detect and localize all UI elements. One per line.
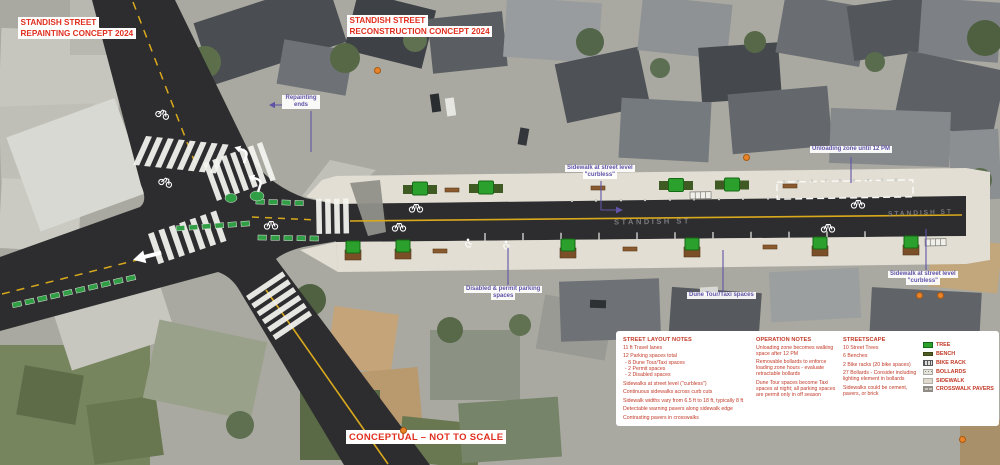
title-line: STANDISH STREET bbox=[18, 17, 99, 28]
callout-text: Disabled & permit parking bbox=[464, 286, 542, 293]
note-item: Sidewalks at street level ("curbless") bbox=[623, 382, 751, 388]
legend-label: BENCH bbox=[936, 351, 955, 357]
note-item: Dune Tour spaces become Taxi spaces at n… bbox=[756, 381, 839, 399]
operation-notes: OPERATION NOTES Unloading zone becomes w… bbox=[756, 337, 839, 399]
legend-label: TREE bbox=[936, 342, 950, 348]
legend-item: BIKE RACK bbox=[923, 360, 997, 366]
note-item: 6 Benches bbox=[843, 354, 920, 360]
legend-swatch-icon bbox=[923, 378, 933, 384]
callout-text: Sidewalk at street level bbox=[565, 165, 635, 172]
legend-label: BIKE RACK bbox=[936, 360, 966, 366]
utility-marker-icon bbox=[959, 436, 966, 443]
callout-text: "curbless" bbox=[583, 172, 617, 179]
street-end-cap bbox=[966, 168, 990, 264]
utility-marker-icon bbox=[374, 67, 381, 74]
legend-swatch-icon bbox=[923, 369, 933, 375]
legend-item: SIDEWALK bbox=[923, 378, 997, 384]
callout-text: Sidewalk at street level bbox=[888, 271, 958, 278]
callout-sidewalk-curbless-right: Sidewalk at street level "curbless" bbox=[888, 271, 958, 285]
street-layout-notes: STREET LAYOUT NOTES 11 ft Travel lanes12… bbox=[623, 337, 751, 422]
legend-swatch-icon bbox=[923, 352, 933, 356]
legend-item: BENCH bbox=[923, 351, 997, 357]
legend-item: BOLLARDS bbox=[923, 369, 997, 375]
note-item: 2 Bike racks (20 bike spaces) bbox=[843, 363, 920, 369]
notes-list: 11 ft Travel lanes12 Parking spaces tota… bbox=[623, 346, 751, 422]
note-item: Sidewalks could be cement, pavers, or br… bbox=[843, 386, 920, 398]
callout-text: Dune Tour/Taxi spaces bbox=[687, 292, 756, 299]
legend-swatch-icon bbox=[923, 386, 933, 392]
callout-text: "curbless" bbox=[906, 278, 940, 285]
note-item: - 2 Disabled spaces bbox=[623, 373, 751, 379]
callout-unloading-zone: Unloading zone until 12 PM bbox=[810, 146, 892, 153]
utility-marker-icon bbox=[916, 292, 923, 299]
legend-item: TREE bbox=[923, 342, 997, 348]
street-plan-canvas: STANDISH ST STANDISH ST bbox=[0, 0, 1000, 465]
legend-label: BOLLARDS bbox=[936, 369, 966, 375]
utility-marker-icon bbox=[937, 292, 944, 299]
notes-heading: STREETSCAPE bbox=[843, 337, 920, 343]
callout-text: Unloading zone until 12 PM bbox=[810, 146, 892, 153]
note-item: Unloading zone becomes walking space aft… bbox=[756, 346, 839, 358]
callout-text: spaces bbox=[491, 293, 515, 300]
legend-label: CROSSWALK PAVERS bbox=[936, 386, 994, 392]
note-item: 10 Street Trees bbox=[843, 346, 920, 352]
utility-marker-icon bbox=[400, 427, 407, 434]
note-item: Contrasting pavers in crosswalks bbox=[623, 416, 751, 422]
callout-disabled-permit-parking: Disabled & permit parking spaces bbox=[464, 286, 542, 300]
conceptual-disclaimer: CONCEPTUAL – NOT TO SCALE bbox=[346, 430, 506, 444]
callout-text: Repainting ends bbox=[282, 95, 320, 109]
note-item: Detectable warning pavers along sidewalk… bbox=[623, 407, 751, 413]
note-item: 11 ft Travel lanes bbox=[623, 346, 751, 352]
note-item: Continuous sidewalks across curb cuts bbox=[623, 390, 751, 396]
legend-label: SIDEWALK bbox=[936, 378, 964, 384]
legend-item: CROSSWALK PAVERS bbox=[923, 386, 997, 392]
map-legend: TREE BENCH BIKE RACK BOLLARDS bbox=[923, 342, 997, 395]
note-item: 27 Bollards - Consider including lightin… bbox=[843, 371, 920, 383]
utility-marker-icon bbox=[743, 154, 750, 161]
notes-list: 10 Street Trees6 Benches2 Bike racks (20… bbox=[843, 346, 920, 398]
note-item: Sidewalk widths vary from 6.5 ft to 18 f… bbox=[623, 399, 751, 405]
title-line: STANDISH STREET bbox=[347, 15, 428, 26]
notes-list: Unloading zone becomes walking space aft… bbox=[756, 346, 839, 399]
notes-heading: OPERATION NOTES bbox=[756, 337, 839, 343]
callout-sidewalk-curbless-left: Sidewalk at street level "curbless" bbox=[565, 165, 635, 179]
bike-rack bbox=[690, 192, 711, 199]
note-item: Removable bollards to enforce loading zo… bbox=[756, 360, 839, 378]
title-line: REPAINTING CONCEPT 2024 bbox=[18, 28, 136, 39]
title-line: RECONSTRUCTION CONCEPT 2024 bbox=[347, 26, 492, 37]
legend-swatch-icon bbox=[923, 360, 933, 366]
notes-heading: STREET LAYOUT NOTES bbox=[623, 337, 751, 343]
streetscape-notes: STREETSCAPE 10 Street Trees6 Benches2 Bi… bbox=[843, 337, 920, 398]
legend-swatch-icon bbox=[923, 342, 933, 348]
callout-repainting-ends: Repainting ends bbox=[282, 95, 318, 109]
bike-rack bbox=[925, 239, 946, 246]
callout-dune-tour-taxi: Dune Tour/Taxi spaces bbox=[687, 292, 756, 299]
title-repainting-concept: STANDISH STREET REPAINTING CONCEPT 2024 bbox=[18, 17, 136, 39]
title-reconstruction-concept: STANDISH STREET RECONSTRUCTION CONCEPT 2… bbox=[347, 15, 492, 37]
street-name-pavement: STANDISH ST bbox=[614, 216, 691, 226]
notes-panel: STREET LAYOUT NOTES 11 ft Travel lanes12… bbox=[616, 331, 999, 426]
legend-list: TREE BENCH BIKE RACK BOLLARDS bbox=[923, 342, 997, 392]
